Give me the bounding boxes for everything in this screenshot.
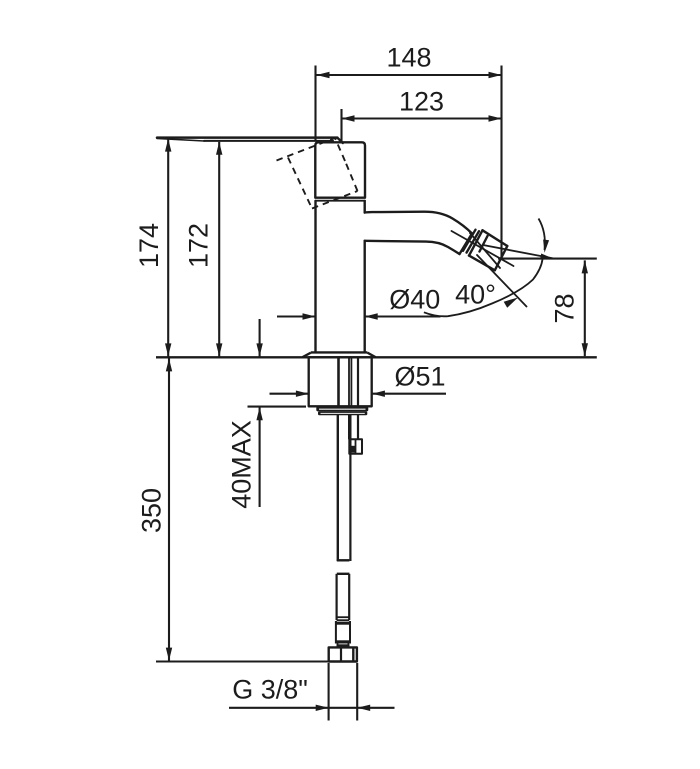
svg-text:174: 174 bbox=[134, 223, 164, 268]
svg-text:350: 350 bbox=[137, 488, 167, 533]
svg-text:172: 172 bbox=[184, 223, 214, 268]
svg-text:148: 148 bbox=[386, 43, 431, 73]
svg-text:G 3/8": G 3/8" bbox=[232, 675, 308, 705]
svg-text:Ø40: Ø40 bbox=[389, 285, 440, 315]
svg-text:123: 123 bbox=[399, 87, 444, 117]
svg-text:40°: 40° bbox=[455, 280, 496, 310]
svg-text:40MAX: 40MAX bbox=[227, 420, 257, 509]
svg-text:78: 78 bbox=[550, 293, 580, 323]
svg-text:Ø51: Ø51 bbox=[394, 362, 445, 392]
